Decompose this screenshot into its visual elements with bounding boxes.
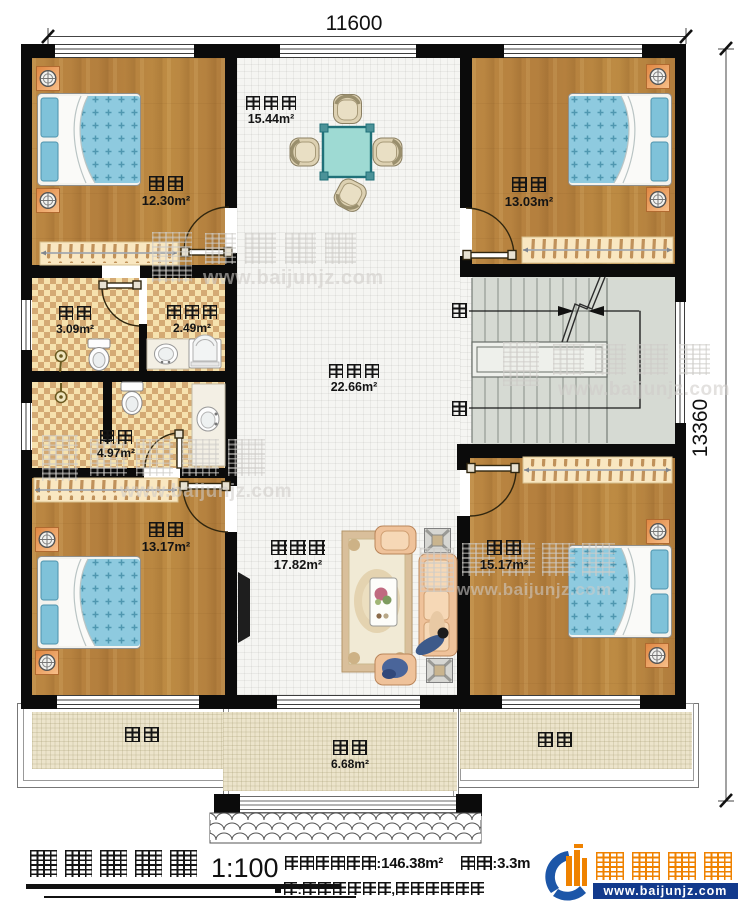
svg-text:11600: 11600: [326, 12, 383, 35]
svg-text:13360: 13360: [689, 399, 712, 457]
